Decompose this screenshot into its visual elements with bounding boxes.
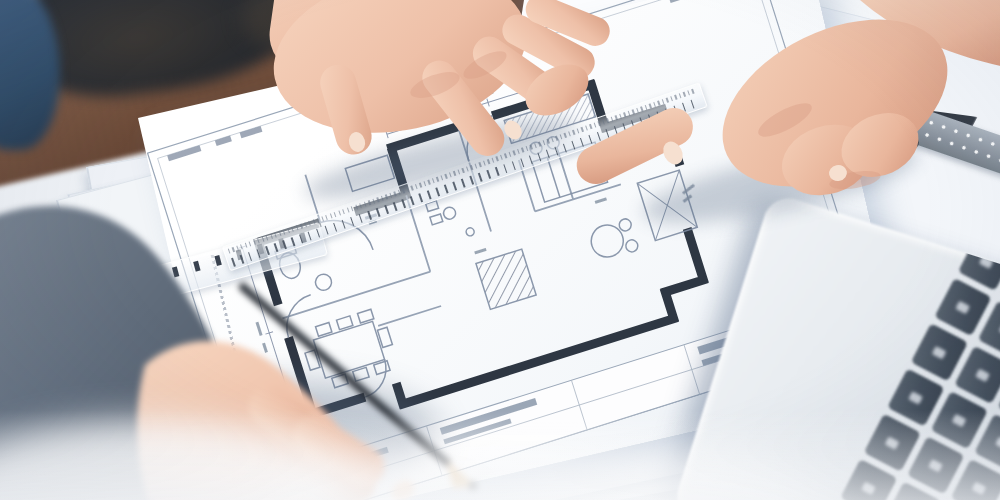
blueprint-meeting-photo bbox=[0, 0, 1000, 500]
pointing-index-finger bbox=[570, 102, 699, 191]
pointing-hand bbox=[545, 0, 1000, 230]
